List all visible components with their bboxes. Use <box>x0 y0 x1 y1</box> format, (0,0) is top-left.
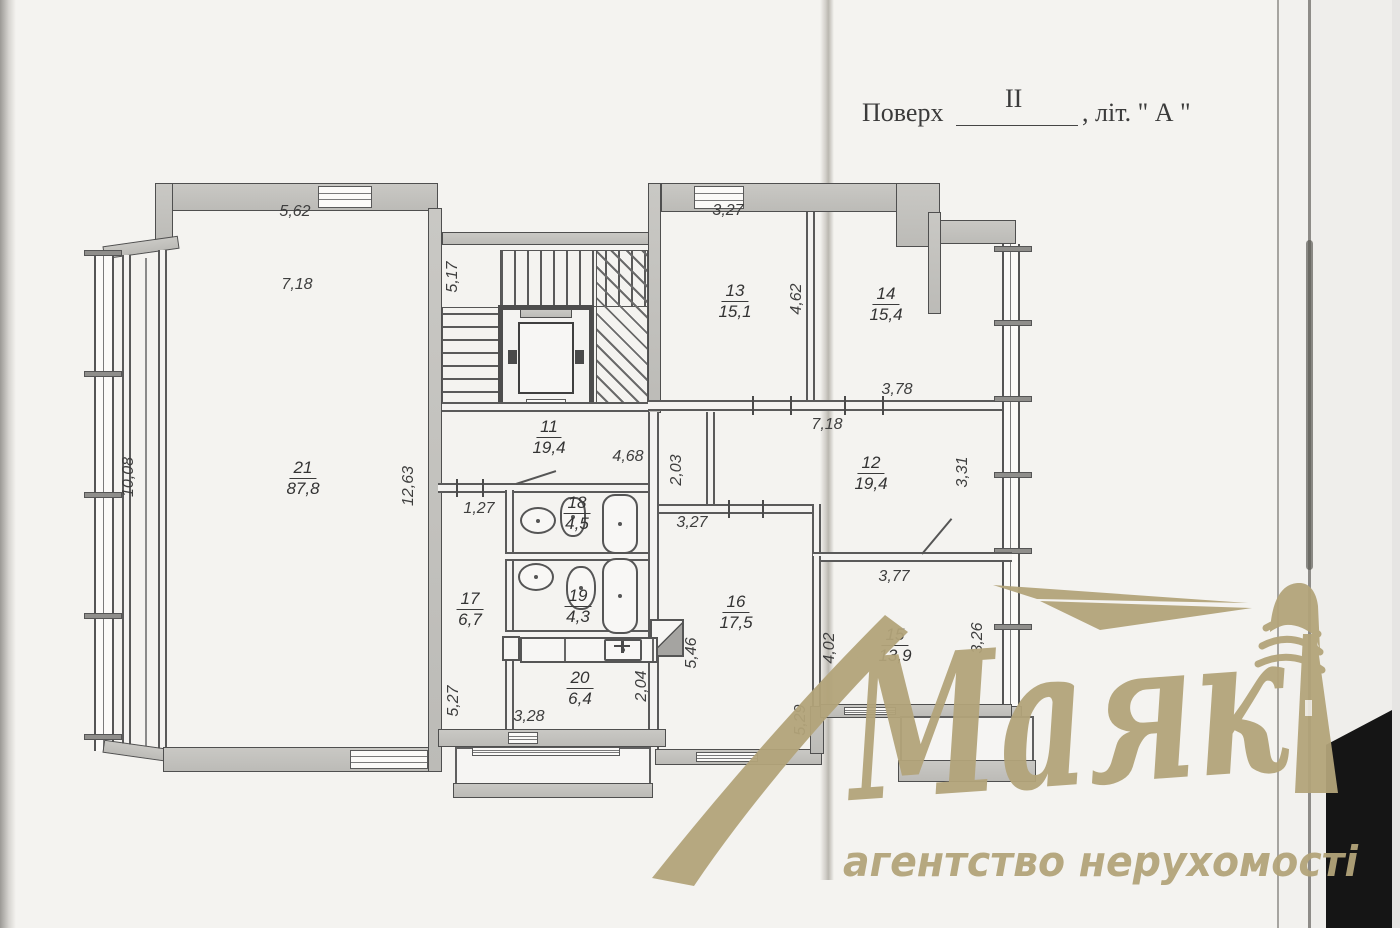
room-number: 12 <box>858 453 885 474</box>
room-label: 1415,4 <box>869 284 902 324</box>
dimension-label: 5,62 <box>279 203 310 221</box>
dimension-label: 2,03 <box>668 454 686 485</box>
dimension-label: 5,29 <box>792 704 810 735</box>
room-label: 176,7 <box>457 589 484 629</box>
room-number: 13 <box>722 281 749 302</box>
room-label: 1617,5 <box>719 592 752 632</box>
dimension-label: 3,28 <box>513 708 544 726</box>
dimension-label: 3,27 <box>676 514 707 532</box>
room-area: 13,9 <box>878 646 911 666</box>
dimension-label: 4,02 <box>821 632 839 663</box>
room-label: 1219,4 <box>854 453 887 493</box>
room-area: 87,8 <box>286 479 319 499</box>
room-label: 194,3 <box>565 586 592 626</box>
room-area: 6,4 <box>567 689 594 709</box>
room-number: 15 <box>882 625 909 646</box>
dimension-label: 3,31 <box>954 456 972 487</box>
scanned-floor-plan-page: Поверх II , літ. " А " <box>0 0 1400 928</box>
room-label: 1513,9 <box>878 625 911 665</box>
dimension-label: 10,08 <box>120 457 138 497</box>
floor-plan: 2187,81119,41315,11415,41219,4184,5194,3… <box>0 0 1400 928</box>
room-area: 4,5 <box>564 514 591 534</box>
dimension-label: 1,27 <box>463 500 494 518</box>
room-number: 11 <box>536 417 562 438</box>
dimension-label: 7,18 <box>811 416 842 434</box>
dimension-label: 5,46 <box>683 637 701 668</box>
room-label: 1315,1 <box>718 281 751 321</box>
room-label: 2187,8 <box>286 458 319 498</box>
scan-void-corner <box>1326 710 1392 928</box>
room-number: 20 <box>567 668 594 689</box>
dimension-label: 4,68 <box>612 448 643 466</box>
room-number: 17 <box>457 589 484 610</box>
room-area: 6,7 <box>457 610 484 630</box>
dimension-label: 7,18 <box>281 276 312 294</box>
room-area: 15,1 <box>718 302 751 322</box>
dimension-label: 2,04 <box>633 670 651 701</box>
room-number: 21 <box>290 458 317 479</box>
dimension-label: 12,63 <box>400 466 418 506</box>
room-number: 18 <box>564 493 591 514</box>
room-label: 206,4 <box>567 668 594 708</box>
room-label: 184,5 <box>564 493 591 533</box>
room-area: 4,3 <box>565 607 592 627</box>
dimension-label: 3,27 <box>712 202 743 220</box>
dimension-label: 4,62 <box>788 283 806 314</box>
room-label: 1119,4 <box>532 417 565 457</box>
dimension-label: 3,78 <box>881 381 912 399</box>
dimension-label: 5,17 <box>444 261 462 292</box>
dimension-label: 3,77 <box>878 568 909 586</box>
dimension-label: 3,26 <box>969 622 987 653</box>
dimension-label: 5,27 <box>445 685 463 716</box>
plan-labels: 2187,81119,41315,11415,41219,4184,5194,3… <box>0 0 1400 928</box>
room-number: 16 <box>723 592 750 613</box>
room-area: 15,4 <box>869 305 902 325</box>
room-area: 19,4 <box>854 474 887 494</box>
room-area: 19,4 <box>532 438 565 458</box>
room-number: 19 <box>565 586 592 607</box>
room-area: 17,5 <box>719 613 752 633</box>
room-number: 14 <box>873 284 900 305</box>
